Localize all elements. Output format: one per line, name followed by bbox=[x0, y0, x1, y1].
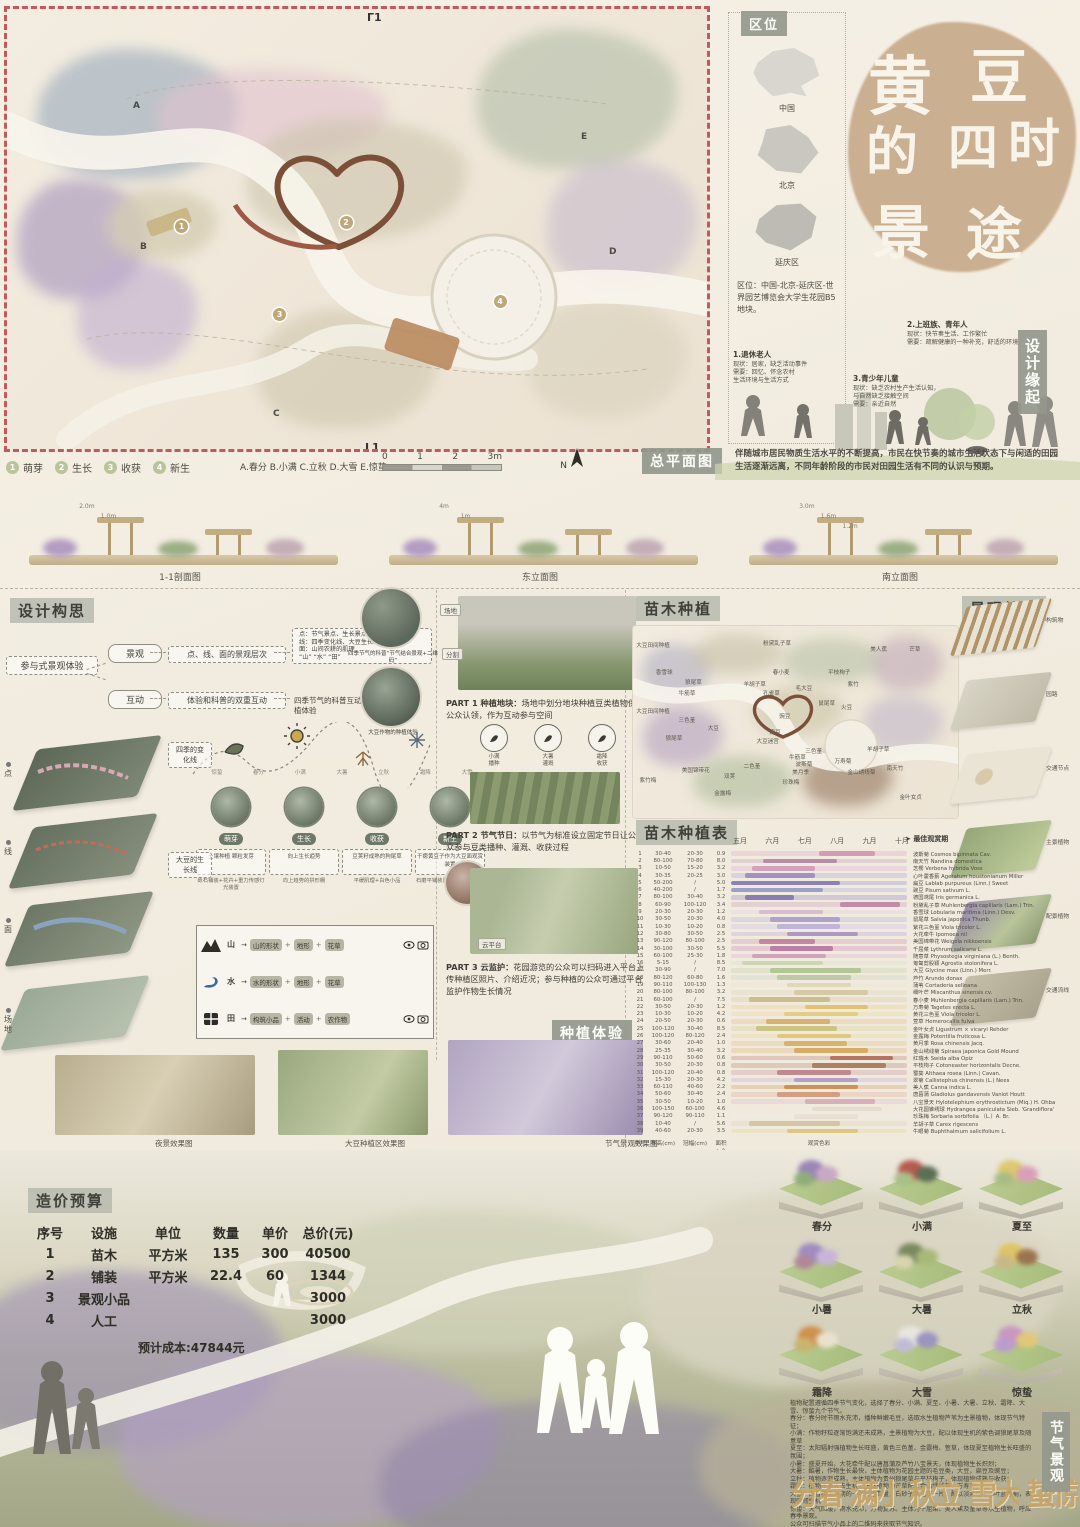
render-solar-landscape bbox=[448, 1040, 643, 1135]
layer-ribbons bbox=[28, 742, 178, 1052]
plant-map-label: 香雪球 bbox=[656, 668, 673, 676]
part2-caption: PART 2 节气节日：以节气为标准设立固定节日让公众参与豆类播种、灌溉、收获过… bbox=[446, 830, 642, 854]
plant-map-label: 双荚 bbox=[724, 772, 735, 780]
season-stamp: 小满 bbox=[847, 1478, 901, 1524]
plant-map-label: 鼠尾草 bbox=[818, 699, 835, 707]
part1-tag-site: 场地 bbox=[440, 604, 461, 616]
bloom-bar bbox=[731, 968, 907, 973]
budget-row: 4人工3000 bbox=[28, 1309, 358, 1331]
bloom-bar bbox=[731, 917, 907, 922]
stage-photo-circle bbox=[358, 788, 396, 826]
bloom-bar-peak bbox=[812, 1107, 882, 1112]
plant-crown: / bbox=[679, 887, 711, 893]
budget-cell: 2 bbox=[28, 1269, 72, 1284]
mapping-step: 农作物 bbox=[325, 1013, 351, 1025]
plant-area: 5.0 bbox=[711, 880, 731, 886]
plant-no: 31 bbox=[633, 1070, 647, 1076]
plan-paths bbox=[7, 9, 707, 449]
plant-row: 23 10-30 10-20 4.2 黄花三色堇 Viola tricolor … bbox=[633, 1011, 1080, 1018]
bloom-bar bbox=[731, 932, 907, 937]
persona-title: 3.青少年儿童 bbox=[853, 374, 973, 384]
plant-no: 33 bbox=[633, 1084, 647, 1090]
bloom-bar-peak bbox=[794, 1078, 857, 1083]
plant-clump bbox=[916, 1249, 938, 1265]
plan-marker: 2 bbox=[340, 216, 353, 229]
height-annotation: 2.0m bbox=[79, 503, 94, 510]
elevation-caption: 南立面图 bbox=[720, 570, 1080, 583]
season-tile-name: 大雪 bbox=[872, 1384, 972, 1399]
plant-row: 38 10-40 / 5.6 羊胡子草 Carex rigescens bbox=[633, 1120, 1080, 1127]
bloom-bar-peak bbox=[784, 1041, 847, 1046]
plant-area: 3.2 bbox=[711, 1048, 731, 1054]
plant-row: 12 30-80 30-50 2.5 大花牵牛 Ipomoea nil bbox=[633, 930, 1080, 937]
pushpin-icon bbox=[6, 762, 11, 767]
plant-clump bbox=[994, 1172, 1014, 1186]
persona-line: 现状：居家，缺乏活动事件 bbox=[733, 361, 807, 368]
bloom-bar bbox=[731, 961, 907, 966]
season-tile-name: 惊蛰 bbox=[972, 1384, 1072, 1399]
plant-no: 23 bbox=[633, 1011, 647, 1017]
plant-map-label: 豌豆 bbox=[779, 712, 790, 720]
bloom-bar bbox=[731, 946, 907, 951]
plant-map-label: 大豆田间种植 bbox=[636, 707, 670, 715]
plant-area: 8.0 bbox=[711, 858, 731, 864]
part2-title: PART 2 节气节日： bbox=[446, 830, 521, 840]
plant-clump bbox=[816, 1166, 838, 1182]
arrow-icon: → bbox=[241, 1015, 247, 1023]
plant-no: 30 bbox=[633, 1062, 647, 1068]
height-annotation: 4m bbox=[439, 503, 449, 510]
budget-cell: 3 bbox=[28, 1291, 72, 1306]
elevation-post bbox=[828, 521, 831, 555]
plant-map-label: 南天竹 bbox=[887, 764, 904, 772]
concept-root: 参与式景观体验 bbox=[6, 656, 98, 675]
plant-height: 30-50 bbox=[647, 916, 679, 922]
plan-legend-note: A.春分 B.小满 C.立秋 D.大雪 E.惊蛰 bbox=[240, 460, 387, 473]
plant-height: 30-35 bbox=[647, 873, 679, 879]
plant-area: 2.4 bbox=[711, 1091, 731, 1097]
render-soy-area bbox=[278, 1050, 428, 1135]
plant-height: 50-60 bbox=[647, 1091, 679, 1097]
season-tick: 大暑 bbox=[336, 768, 347, 776]
structure-layer: 交通节点 bbox=[958, 744, 1078, 818]
plant-no: 15 bbox=[633, 953, 647, 959]
plant-map-label: 毛大豆 bbox=[796, 684, 813, 692]
plant-tuft bbox=[43, 539, 77, 557]
month-label: 六月 bbox=[765, 836, 779, 846]
bloom-bar-peak bbox=[770, 968, 862, 973]
plant-area: 1.8 bbox=[711, 953, 731, 959]
festival-circle-icon bbox=[534, 724, 562, 752]
bloom-bar-peak bbox=[742, 961, 823, 966]
budget-row: 3景观小品3000 bbox=[28, 1287, 358, 1309]
season-tile-name: 霜降 bbox=[772, 1384, 872, 1399]
structure-layer-label: 构筑物 bbox=[1046, 618, 1078, 625]
plant-map-label: 孔雀草 bbox=[763, 689, 780, 697]
part3-tag-cloud: 云平台 bbox=[478, 938, 506, 950]
eye-camera-icons bbox=[403, 940, 429, 950]
plant-map-label: 牛筋草 bbox=[679, 689, 696, 697]
season-tick: 惊蛰 bbox=[211, 768, 222, 776]
elevation-roof bbox=[925, 529, 972, 535]
plant-height: 30-80 bbox=[647, 931, 679, 937]
legend-item: 4新生 bbox=[153, 460, 190, 475]
bloom-bar bbox=[731, 1107, 907, 1112]
plant-no: 21 bbox=[633, 997, 647, 1003]
plant-row: 32 15-30 20-30 4.2 翠菊 Callistephus chine… bbox=[633, 1076, 1080, 1083]
plant-clump bbox=[916, 1166, 938, 1182]
plant-row: 39 40-60 20-30 3.5 牛眼菊 Buphthalmum salic… bbox=[633, 1127, 1080, 1134]
plant-no: 35 bbox=[633, 1099, 647, 1105]
plant-crown: 30-50 bbox=[679, 946, 711, 952]
season-tile: 春分 bbox=[772, 1152, 872, 1235]
plant-row: 1 30-40 20-30 0.9 波斯菊 Cosmos bipinnata C… bbox=[633, 850, 1080, 857]
plant-map-label: 三色堇 bbox=[679, 716, 696, 724]
elevation-card: 4m1m 东立面图 bbox=[360, 495, 720, 583]
plant-crown: 60-80 bbox=[679, 975, 711, 981]
bloom-bar-peak bbox=[777, 924, 840, 929]
season-tile-name: 小满 bbox=[872, 1218, 972, 1233]
stage-caption: 砾石铺装+花卉+重力传感灯光装置 bbox=[196, 878, 266, 892]
season-tile: 夏至 bbox=[972, 1152, 1072, 1235]
plant-height: 30-60 bbox=[647, 1040, 679, 1046]
plant-no: 38 bbox=[633, 1121, 647, 1127]
growth-stage: 生长 向上生长趋势 向上趋势的拱形棚 bbox=[269, 788, 339, 892]
plant-crown: 30-40 bbox=[679, 894, 711, 900]
plant-row: 21 60-100 / 7.5 春小麦 Muhlenbergia capilla… bbox=[633, 996, 1080, 1003]
bloom-bar-peak bbox=[766, 1019, 829, 1024]
plant-map-label: 狼尾草 bbox=[685, 678, 702, 686]
plant-crown: 60-100 bbox=[679, 1106, 711, 1112]
plant-crown: / bbox=[679, 1121, 711, 1127]
bloom-bar bbox=[731, 1034, 907, 1039]
plant-area: 3.2 bbox=[711, 894, 731, 900]
plant-crown: 90-110 bbox=[679, 1113, 711, 1119]
plant-height: 80-100 bbox=[647, 989, 679, 995]
plant-map-label: 二色堇 bbox=[744, 762, 761, 770]
stage-caption: 向上趋势的拱形棚 bbox=[269, 878, 339, 885]
plant-no: 22 bbox=[633, 1004, 647, 1010]
structure-layer-label: 园路 bbox=[1046, 692, 1078, 699]
mapping-row: 山→山的形状+地形+花草 bbox=[197, 926, 433, 963]
eye-camera-icons bbox=[403, 1014, 429, 1024]
elevation-post bbox=[108, 521, 111, 555]
mapping-row: 田→构筑小品+活动+农作物 bbox=[197, 1000, 433, 1037]
plant-map-label: 金露梅 bbox=[714, 789, 731, 797]
plant-row: 26 100-120 80-120 2.4 金露梅 Potentilla fru… bbox=[633, 1032, 1080, 1039]
plant-crown: 80-120 bbox=[679, 1033, 711, 1039]
connector bbox=[274, 698, 290, 699]
plant-height: 60-100 bbox=[647, 953, 679, 959]
elevation-strip: 2.0m1.0m 1-1剖面图 4m1m 东立面图 3.0m1.6m1. bbox=[0, 495, 1080, 583]
legend-text: 收获 bbox=[121, 460, 141, 475]
season-stamp: 春分 bbox=[788, 1478, 842, 1524]
structure-layer: 构筑物 bbox=[958, 596, 1078, 670]
season-ticks: 惊蛰春分小满大暑立秋霜降大雪 bbox=[196, 768, 488, 776]
budget-cell: 人工 bbox=[72, 1311, 136, 1330]
plant-no: 37 bbox=[633, 1113, 647, 1119]
plant-area: 1.2 bbox=[711, 1004, 731, 1010]
plant-area: 1.0 bbox=[711, 1099, 731, 1105]
plant-area: 2.5 bbox=[711, 931, 731, 937]
bloom-bar-peak bbox=[840, 902, 900, 907]
budget-rows: 1苗木平方米135300405002铺装平方米22.46013443景观小品30… bbox=[28, 1243, 358, 1331]
layer-label: 面 bbox=[2, 918, 14, 935]
arrow-icon: → bbox=[241, 978, 247, 986]
mapping-step: 地形 bbox=[294, 939, 313, 951]
plant-area: 4.2 bbox=[711, 1077, 731, 1083]
plant-crown: 80-100 bbox=[679, 989, 711, 995]
bloom-bar-peak bbox=[777, 1070, 851, 1075]
plant-crown: 20-30 bbox=[679, 1128, 711, 1134]
stage-photo-circle bbox=[285, 788, 323, 826]
stage-box: 向上生长趋势 bbox=[269, 849, 339, 875]
mapping-name: 山 bbox=[224, 939, 238, 950]
plant-height: 10-30 bbox=[647, 1011, 679, 1017]
field-icon bbox=[201, 1012, 221, 1026]
plant-clump bbox=[816, 1249, 838, 1265]
plant-no: 27 bbox=[633, 1040, 647, 1046]
scale-tick: 1 bbox=[417, 452, 423, 462]
structure-layer-label: 交通节点 bbox=[1046, 766, 1078, 773]
bloom-bar bbox=[731, 990, 907, 995]
plant-map-label: 大豆 bbox=[708, 724, 719, 732]
legend-number: 4 bbox=[153, 461, 166, 474]
bloom-bar bbox=[731, 1026, 907, 1031]
budget-label: 造价预算 bbox=[28, 1188, 112, 1213]
plant-no: 25 bbox=[633, 1026, 647, 1032]
plant-no: 18 bbox=[633, 975, 647, 981]
plant-no: 7 bbox=[633, 894, 647, 900]
plant-area: 4.0 bbox=[711, 916, 731, 922]
plant-area: 2.2 bbox=[711, 1084, 731, 1090]
plant-height: 60-110 bbox=[647, 1084, 679, 1090]
month-label: 九月 bbox=[863, 836, 877, 846]
plant-row: 28 25-35 30-40 3.2 金山绣线菊 Spiraea japonic… bbox=[633, 1047, 1080, 1054]
plus-sign: + bbox=[285, 1015, 291, 1023]
plant-table-months: 五月六月七月八月九月十月 bbox=[733, 836, 909, 846]
plant-row: 36 100-150 60-100 4.6 大花圆锥绣球 Hydrangea p… bbox=[633, 1105, 1080, 1112]
budget-header-cell: 总价(元) bbox=[298, 1223, 358, 1242]
plant-row: 2 80-100 70-80 8.0 南天竹 Nandina domestica bbox=[633, 857, 1080, 864]
plant-map-label: 三色堇 bbox=[805, 747, 822, 755]
season-tile: 立秋 bbox=[972, 1235, 1072, 1318]
map-caption: 延庆区 bbox=[729, 257, 845, 268]
bloom-bar bbox=[731, 1041, 907, 1046]
layer-label: 场地 bbox=[2, 1008, 14, 1034]
best-period-text: 最佳观赏期 bbox=[913, 835, 948, 843]
plant-crown: 10-20 bbox=[679, 1099, 711, 1105]
bloom-bar bbox=[731, 1099, 907, 1104]
plant-clump bbox=[1016, 1166, 1038, 1182]
plant-height: 20-30 bbox=[647, 909, 679, 915]
stage-photo-circle bbox=[212, 788, 250, 826]
plant-no: 17 bbox=[633, 967, 647, 973]
mapping-step: 活动 bbox=[294, 1013, 313, 1025]
part3-caption: PART 3 云监护：花园游览的公众可以扫码进入平台上传种植区照片、介绍近况；参… bbox=[446, 962, 646, 998]
bloom-bar-peak bbox=[759, 910, 822, 915]
plant-crown: 30-40 bbox=[679, 1091, 711, 1097]
plant-clump bbox=[1016, 1332, 1038, 1348]
plant-row: 17 30-90 / 7.0 大豆 Glycine max (Linn.) Me… bbox=[633, 967, 1080, 974]
plant-crown: / bbox=[679, 967, 711, 973]
plant-crown: 20-30 bbox=[679, 1004, 711, 1010]
plus-sign: + bbox=[316, 1015, 322, 1023]
budget-cell: 景观小品 bbox=[72, 1289, 136, 1308]
plant-area: 4.6 bbox=[711, 1106, 731, 1112]
plant-map-label: 平枝栒子 bbox=[828, 668, 850, 676]
plan-grid-mark-top: Г1 bbox=[367, 11, 382, 24]
plant-table: 1 30-40 20-30 0.9 波斯菊 Cosmos bipinnata C… bbox=[633, 850, 1080, 1135]
plant-map-label: 粉黛乱子草 bbox=[763, 639, 791, 647]
season-stamps: 春分小满立秋大雪惊蛰 bbox=[788, 1478, 1078, 1524]
concept-mid-2: 体验和科普的双重互动 bbox=[168, 692, 286, 709]
persona-line: 现状：缺乏农村生产生活认知， bbox=[853, 385, 940, 392]
plant-crown: 30-40 bbox=[679, 1026, 711, 1032]
north-label: N bbox=[560, 461, 567, 471]
farm-tool-icon bbox=[595, 731, 609, 745]
part2-icons: 小满播种大暑灌溉霜降收获 bbox=[474, 724, 622, 768]
bloom-bar bbox=[731, 873, 907, 878]
plant-crown: 15-20 bbox=[679, 865, 711, 871]
plant-clump bbox=[794, 1255, 814, 1269]
legend-item: 3收获 bbox=[104, 460, 141, 475]
bloom-bar-peak bbox=[830, 1056, 893, 1061]
plan-letter: B bbox=[140, 242, 147, 252]
mountain-icon bbox=[201, 938, 221, 952]
growth-stage: 收获 豆荚籽成熟的狗尾草 平缓肌理+白色小品 bbox=[342, 788, 412, 892]
bloom-bar bbox=[731, 895, 907, 900]
part1-title: PART 1 种植地块： bbox=[446, 698, 521, 708]
season-tile-name: 小暑 bbox=[772, 1301, 872, 1316]
location-map: 北京 bbox=[729, 124, 845, 191]
plant-crown: 40-60 bbox=[679, 1084, 711, 1090]
bloom-bar bbox=[731, 1048, 907, 1053]
mapping-step: 山的形状 bbox=[250, 939, 282, 951]
elevation-caption: 东立面图 bbox=[360, 570, 720, 583]
bloom-bar-peak bbox=[731, 881, 840, 886]
plant-tuft bbox=[763, 539, 797, 557]
legend-text: 萌芽 bbox=[23, 460, 43, 475]
bloom-bar-peak bbox=[777, 1034, 851, 1039]
season-tick: 小满 bbox=[295, 768, 306, 776]
budget-cell: 4 bbox=[28, 1313, 72, 1328]
month-label: 五月 bbox=[733, 836, 747, 846]
plant-no: 13 bbox=[633, 938, 647, 944]
family-silhouette bbox=[537, 1322, 659, 1434]
bloom-bar bbox=[731, 881, 907, 886]
plant-row: 25 100-120 30-40 8.5 金叶女贞 Ligustrum × vi… bbox=[633, 1025, 1080, 1032]
arrow-icon: → bbox=[241, 941, 247, 949]
plant-row: 22 30-50 20-30 1.2 万寿菊 Tagetes erecta L. bbox=[633, 1003, 1080, 1010]
bloom-bar-peak bbox=[756, 1026, 837, 1031]
season-tick: 立秋 bbox=[378, 768, 389, 776]
plant-row: 18 80-120 60-80 1.6 芦竹 Arundo donax bbox=[633, 974, 1080, 981]
plant-map-label: 美人蕉 bbox=[870, 645, 887, 653]
height-annotation: 1.2m bbox=[842, 523, 857, 530]
bloom-bar bbox=[731, 1012, 907, 1017]
bloom-bar-peak bbox=[759, 939, 815, 944]
plant-map-label: 火豆 bbox=[841, 703, 852, 711]
persona-block: 3.青少年儿童 现状：缺乏农村生产生活认知， 与自然缺乏接触空间 需要：亲近自然 bbox=[853, 374, 973, 409]
plant-no: 34 bbox=[633, 1091, 647, 1097]
budget-header-cell: 序号 bbox=[28, 1223, 72, 1242]
bloom-bar bbox=[731, 939, 907, 944]
legend-text: 新生 bbox=[170, 460, 190, 475]
plant-map-label: 美月季 bbox=[792, 768, 809, 776]
connector bbox=[274, 652, 290, 653]
structure-layer-thumb bbox=[950, 746, 1052, 804]
bloom-bar-peak bbox=[749, 1121, 841, 1126]
bloom-bar bbox=[731, 954, 907, 959]
budget-header-cell: 单价 bbox=[252, 1223, 298, 1242]
plant-row: 5 50-200 / 5.0 扁豆 Lablab purpureus (Linn… bbox=[633, 879, 1080, 886]
map-shape-icon bbox=[752, 47, 822, 99]
best-period-label: ➤ 最佳观赏期 bbox=[905, 834, 948, 844]
budget-cell: 22.4 bbox=[200, 1269, 252, 1284]
plant-height: 100-120 bbox=[647, 1033, 679, 1039]
plant-crown: / bbox=[679, 997, 711, 1003]
plus-sign: + bbox=[316, 978, 322, 986]
plant-map-label: 春小麦 bbox=[773, 668, 790, 676]
plant-map-label: 羊胡子草 bbox=[744, 680, 766, 688]
season-tile: 小满 bbox=[872, 1152, 972, 1235]
plant-clump bbox=[894, 1338, 914, 1352]
plant-no: 6 bbox=[633, 887, 647, 893]
title-chars: 黄 豆 的 四 时 景 途 bbox=[862, 30, 1062, 265]
season-landscape-label: 节气景观 bbox=[1042, 1412, 1070, 1492]
scale-bar-graphic bbox=[382, 464, 502, 471]
pushpin-icon bbox=[6, 840, 11, 845]
plant-clump bbox=[994, 1255, 1014, 1269]
bloom-bar-peak bbox=[805, 1005, 868, 1010]
budget-row: 2铺装平方米22.4601344 bbox=[28, 1265, 358, 1287]
map-caption: 中国 bbox=[729, 103, 845, 114]
budget-cell: 1 bbox=[28, 1247, 72, 1262]
plant-tuft bbox=[403, 539, 437, 557]
bloom-bar-peak bbox=[752, 954, 826, 959]
title-char: 途 bbox=[966, 190, 1022, 271]
persona-line: 与自然缺乏接触空间 bbox=[853, 393, 909, 400]
plant-map-label: 大豆田间种植 bbox=[636, 641, 670, 649]
budget-cell: 3000 bbox=[298, 1291, 358, 1306]
plant-area: 8.5 bbox=[711, 1026, 731, 1032]
height-annotation: 1.0m bbox=[101, 513, 116, 520]
plant-no: 4 bbox=[633, 873, 647, 879]
map-shape-icon bbox=[752, 201, 822, 253]
plant-height: 30-90 bbox=[647, 967, 679, 973]
height-annotation: 1m bbox=[461, 513, 471, 520]
plus-sign: + bbox=[316, 941, 322, 949]
plant-height: 90-120 bbox=[647, 1113, 679, 1119]
plant-area: 0.6 bbox=[711, 1055, 731, 1061]
bloom-bar-peak bbox=[794, 990, 868, 995]
season-tile: 大雪 bbox=[872, 1318, 972, 1401]
part1-caption: PART 1 种植地块：场地中划分地块种植豆类植物供公众认领，作为互动参与空间 bbox=[446, 698, 642, 722]
plant-no: 2 bbox=[633, 858, 647, 864]
festival-caption: 大暑灌溉 bbox=[528, 754, 568, 768]
bloom-bar bbox=[731, 1005, 907, 1010]
persona-line: 需要：疏解健康的一种补充，舒适的环境 bbox=[907, 339, 1018, 346]
plant-no: 12 bbox=[633, 931, 647, 937]
location-text: 区位：中国-北京-延庆区-世界园艺博览会大学生花园B5地块。 bbox=[737, 280, 837, 316]
bloom-bar-peak bbox=[763, 859, 837, 864]
budget-header-cell: 数量 bbox=[200, 1223, 252, 1242]
concept-photo-circle-2 bbox=[362, 668, 420, 726]
bloom-bar-peak bbox=[819, 851, 875, 856]
bloom-bar-peak bbox=[770, 946, 833, 951]
bloom-bar bbox=[731, 866, 907, 871]
